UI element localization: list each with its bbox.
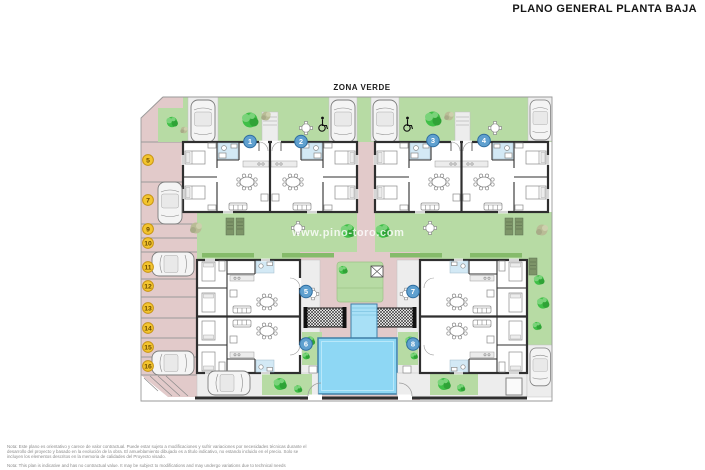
unit-marker-3: 3: [427, 134, 440, 147]
sun-lounger-icon: [236, 218, 244, 235]
svg-text:1: 1: [248, 137, 252, 146]
parking-marker-7: 7: [143, 195, 154, 206]
car-icon: [158, 182, 182, 224]
parking-marker-10: 10: [143, 238, 154, 249]
pool-channel: [351, 304, 377, 338]
car-icon: [191, 100, 215, 142]
unit-marker-1: 1: [244, 135, 257, 148]
unit-marker-4: 4: [478, 134, 491, 147]
svg-text:7: 7: [146, 197, 150, 204]
unit-6-interior: [197, 317, 301, 374]
pergola-left: [304, 307, 347, 328]
unit-3-interior: [374, 141, 461, 214]
svg-text:14: 14: [144, 325, 152, 332]
unit-marker-8: 8: [407, 338, 420, 351]
svg-text:10: 10: [144, 240, 152, 247]
parking-marker-12: 12: [143, 281, 154, 292]
svg-text:7: 7: [411, 287, 415, 296]
unit-4-interior: [462, 141, 549, 214]
shed: [506, 378, 522, 395]
zona-verde-label: ZONA VERDE: [162, 83, 562, 92]
car-icon: [530, 348, 550, 386]
unit-7-interior: [423, 259, 527, 316]
pergola-right: [374, 307, 417, 328]
perimeter-wall: [195, 397, 527, 400]
svg-text:8: 8: [411, 340, 415, 349]
unit-1-interior: [182, 141, 269, 214]
svg-text:11: 11: [144, 264, 151, 271]
unit-marker-6: 6: [300, 338, 313, 351]
car-icon: [530, 100, 550, 140]
parking-marker-16: 16: [143, 361, 154, 372]
unit-2-interior: [271, 141, 358, 214]
svg-text:12: 12: [144, 283, 152, 290]
car-icon: [208, 371, 250, 395]
page-title: PLANO GENERAL PLANTA BAJA: [512, 3, 697, 15]
utility-box: [371, 266, 383, 277]
car-icon: [373, 100, 397, 142]
svg-text:3: 3: [431, 136, 435, 145]
unit-marker-7: 7: [407, 285, 420, 298]
building-bottom-left: [197, 259, 301, 375]
swimming-pool: [318, 338, 397, 394]
svg-text:6: 6: [304, 340, 308, 349]
car-icon: [152, 351, 194, 375]
parking-marker-13: 13: [143, 303, 154, 314]
parking-marker-5: 5: [143, 155, 154, 166]
svg-text:2: 2: [299, 137, 303, 146]
sun-lounger-icon: [529, 258, 537, 275]
parking-marker-11: 11: [143, 262, 154, 273]
building-top-right: [374, 141, 550, 214]
sun-lounger-icon: [505, 218, 513, 235]
car-icon: [331, 100, 355, 142]
building-top-left: [182, 141, 359, 214]
svg-text:5: 5: [304, 287, 308, 296]
disclaimer-en: Nota: This plan is indicative and has no…: [7, 463, 567, 468]
sun-lounger-icon: [226, 218, 234, 235]
unit-8-interior: [423, 317, 527, 374]
svg-text:13: 13: [144, 305, 152, 312]
parking-marker-15: 15: [143, 342, 154, 353]
unit-marker-2: 2: [295, 135, 308, 148]
unit-marker-5: 5: [300, 285, 313, 298]
car-icon: [152, 252, 194, 276]
sun-lounger-icon: [515, 218, 523, 235]
svg-text:9: 9: [146, 226, 150, 233]
unit-5-interior: [197, 259, 301, 316]
parking-marker-14: 14: [143, 323, 154, 334]
disclaimer-es-line3: incluyen los elementos descritos en la m…: [7, 454, 567, 459]
building-bottom-right: [420, 259, 527, 375]
parking-marker-9: 9: [143, 224, 154, 235]
svg-text:15: 15: [144, 344, 152, 351]
svg-text:16: 16: [144, 363, 152, 370]
watermark: www.pino-toro.com: [292, 227, 404, 239]
disclaimer: Nota: Este plano es orientativo y carece…: [7, 444, 567, 468]
svg-text:5: 5: [146, 157, 150, 164]
